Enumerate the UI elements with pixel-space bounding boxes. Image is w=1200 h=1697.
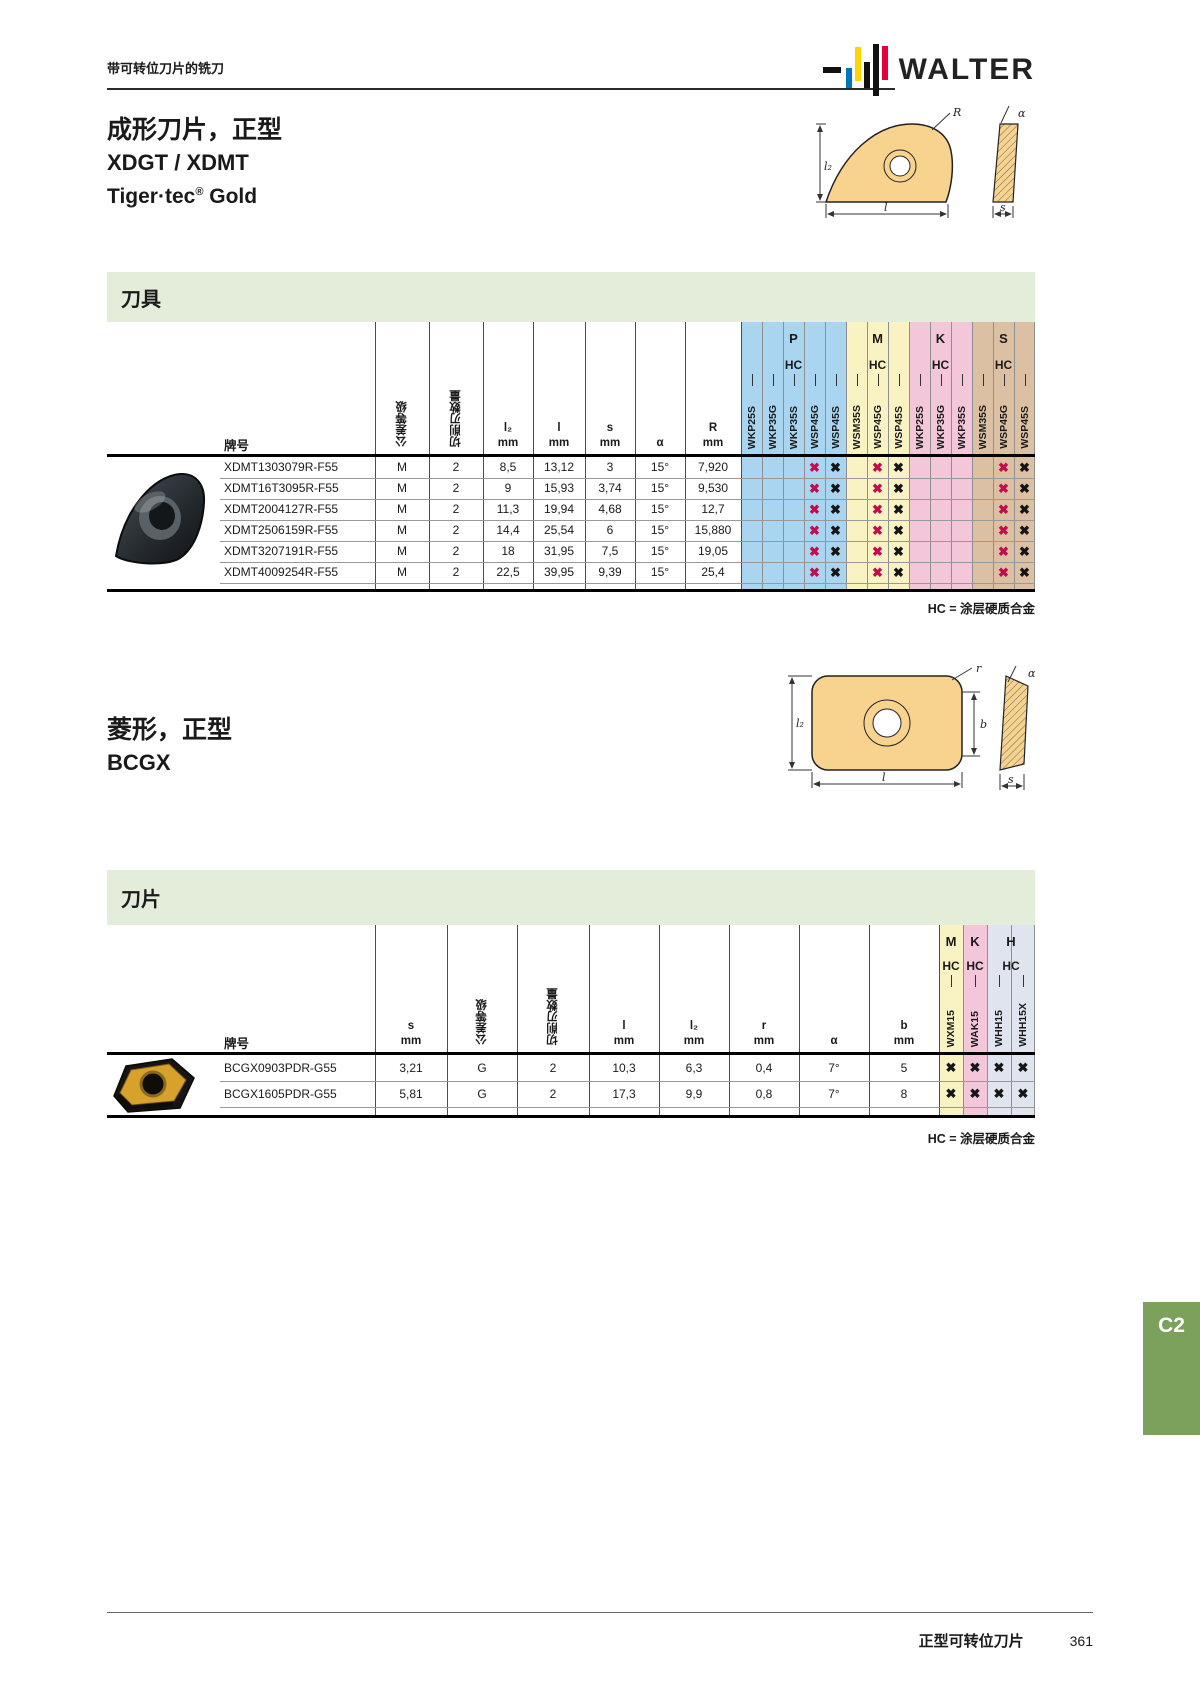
section2-title: 菱形，正型 (107, 710, 232, 746)
dim-l-label: l (884, 201, 888, 214)
section1-subtitle: XDGT / XDMT (107, 150, 249, 176)
rotated-header-label: 切削刃数量 (545, 988, 561, 1046)
tools-table: PHCWKP25SWKP35GWKP35SWSP45GWSP45SMHCWSM3… (107, 322, 1035, 592)
row-cell: 39,95 (533, 562, 585, 583)
grade-mark: ✖ (1014, 562, 1035, 583)
row-cell: 7,920 (685, 457, 741, 478)
dim-l-label: l (882, 771, 886, 784)
row-cell: 3,74 (585, 478, 635, 499)
grade-name: WKP35S (783, 384, 804, 449)
inserts-table: MHCWXM15KHCWAK15HHCWHH15WHH15Xsmm公差等级切削刃… (107, 925, 1035, 1118)
row-cell: 2 (429, 562, 483, 583)
dim-header: rmm (729, 1015, 799, 1049)
xdmt-insert-photo (110, 458, 208, 578)
row-cell: 6 (585, 520, 635, 541)
grade-name-label: WSP45G (872, 405, 884, 449)
grade-mark: ✖ (825, 478, 846, 499)
row-cell: 2 (517, 1081, 589, 1107)
row-cell: 25,4 (685, 562, 741, 583)
rotated-header: 公差等级 (375, 348, 429, 447)
grade-mark: ✖ (888, 499, 909, 520)
footer: 正型可转位刀片 361 (107, 1630, 1093, 1651)
row-designation: XDMT4009254R-F55 (224, 562, 375, 583)
inserts-band-title: 刀片 (107, 883, 161, 912)
row-cell: G (447, 1055, 517, 1081)
row-cell: 0,4 (729, 1055, 799, 1081)
row-cell: 10,3 (589, 1055, 659, 1081)
grade-name: WSP45S (888, 384, 909, 449)
grade-name-label: WKP35G (935, 405, 947, 449)
tools-band-title: 刀具 (107, 283, 161, 312)
grade-name-label: WSP45S (830, 406, 842, 449)
dim-header: lmm (533, 417, 585, 451)
grade-group-letter: H (987, 934, 1035, 949)
grade-mark: ✖ (804, 520, 825, 541)
row-cell: 22,5 (483, 562, 533, 583)
row-cell: 9,39 (585, 562, 635, 583)
grade-name-label: WSP45S (1019, 406, 1031, 449)
row-designation: BCGX0903PDR-G55 (224, 1055, 375, 1081)
grade-name: WKP25S (909, 384, 930, 449)
grade-group-coating: HC (963, 959, 987, 973)
header-rule (107, 88, 895, 90)
row-designation: XDMT2506159R-F55 (224, 520, 375, 541)
dim-alpha-label: α (1028, 667, 1036, 680)
row-cell: 18 (483, 541, 533, 562)
grade-name-label: WSP45S (893, 406, 905, 449)
row-cell: 31,95 (533, 541, 585, 562)
hc-note-1: HC = 涂层硬质合金 (107, 598, 1035, 617)
grade-name-label: WKP35G (767, 405, 779, 449)
grade-name: WKP35G (762, 384, 783, 449)
inserts-band: 刀片 (107, 870, 1035, 925)
xdmt-insert-diagram: l₂ R l α s (812, 104, 1042, 224)
grade-mark: ✖ (825, 562, 846, 583)
bcgx-insert-photo (106, 1054, 200, 1116)
grade-group-coating: HC (846, 358, 909, 372)
row-cell: 2 (429, 541, 483, 562)
row-cell: 13,12 (533, 457, 585, 478)
logo-bar-black-tall-icon (873, 44, 879, 96)
row-cell: 7,5 (585, 541, 635, 562)
grade-mark: ✖ (888, 520, 909, 541)
grade-mark: ✖ (939, 1055, 963, 1081)
grade-group-coating: HC (939, 959, 963, 973)
row-designation: BCGX1605PDR-G55 (224, 1081, 375, 1107)
grade-name-label: WHH15 (993, 1010, 1005, 1047)
grade-mark: ✖ (867, 478, 888, 499)
grade-mark: ✖ (993, 499, 1014, 520)
bottom-rule (107, 1115, 1035, 1118)
dim-l2-label: l₂ (824, 160, 832, 173)
row-designation: XDMT1303079R-F55 (224, 457, 375, 478)
footer-label: 正型可转位刀片 (919, 1630, 1024, 1651)
row-cell: 2 (429, 457, 483, 478)
row-cell: 3,21 (375, 1055, 447, 1081)
grade-name-label: WHH15X (1017, 1003, 1029, 1047)
row-line (220, 583, 1035, 584)
row-cell: 17,3 (589, 1081, 659, 1107)
row-cell: 12,7 (685, 499, 741, 520)
dim-header: l₂mm (659, 1015, 729, 1049)
grade-mark: ✖ (1014, 541, 1035, 562)
row-cell: M (375, 478, 429, 499)
grade-name: WSM35S (972, 384, 993, 449)
grade-mark: ✖ (804, 541, 825, 562)
grade-mark: ✖ (888, 541, 909, 562)
row-cell: 4,68 (585, 499, 635, 520)
row-cell: M (375, 541, 429, 562)
row-cell: G (447, 1081, 517, 1107)
grade-mark: ✖ (1011, 1081, 1035, 1107)
row-cell: 9,530 (685, 478, 741, 499)
grade-name-label: WAK15 (969, 1011, 981, 1047)
section1-title: 成形刀片，正型 (107, 110, 282, 146)
grade-name-label: WSM35S (851, 405, 863, 449)
row-cell: 8 (869, 1081, 939, 1107)
grade-mark: ✖ (993, 562, 1014, 583)
grade-mark: ✖ (867, 520, 888, 541)
grade-group-coating: HC (741, 358, 846, 372)
grade-name-label: WSP45G (809, 405, 821, 449)
grade-name-label: WKP25S (746, 406, 758, 449)
bottom-rule (107, 589, 1035, 592)
grade-name: WXM15 (939, 985, 963, 1047)
row-cell: 15° (635, 541, 685, 562)
grade-mark: ✖ (963, 1055, 987, 1081)
grade-mark: ✖ (939, 1081, 963, 1107)
grade-mark: ✖ (987, 1081, 1011, 1107)
grade-mark: ✖ (867, 499, 888, 520)
grade-group-letter: S (972, 331, 1035, 346)
row-cell: 7° (799, 1081, 869, 1107)
grade-name: WSP45S (1014, 384, 1035, 449)
grade-mark: ✖ (993, 478, 1014, 499)
grade-name: WHH15 (987, 985, 1011, 1047)
tools-band: 刀具 (107, 272, 1035, 322)
row-cell: 2 (429, 520, 483, 541)
logo-wordmark: WALTER (899, 53, 1035, 87)
row-cell: 15,93 (533, 478, 585, 499)
row-cell: 15° (635, 499, 685, 520)
grade-group-letter: M (939, 934, 963, 949)
row-cell: 19,94 (533, 499, 585, 520)
dim-alpha-label: α (1018, 107, 1026, 120)
breadcrumb: 带可转位刀片的铣刀 (107, 58, 224, 77)
grade-mark: ✖ (825, 541, 846, 562)
grade-mark: ✖ (804, 562, 825, 583)
row-cell: 5 (869, 1055, 939, 1081)
row-cell: 2 (517, 1055, 589, 1081)
dim-header: α (799, 1015, 869, 1049)
bcgx-insert-diagram: l₂ r b l α s (782, 664, 1040, 798)
grade-mark: ✖ (1014, 478, 1035, 499)
grade-mark: ✖ (963, 1081, 987, 1107)
dim-r-label: R (952, 106, 961, 119)
row-cell: 9 (483, 478, 533, 499)
grade-mark: ✖ (825, 499, 846, 520)
row-cell: 0,8 (729, 1081, 799, 1107)
logo-bar-red-icon (882, 46, 888, 80)
grade-mark: ✖ (993, 541, 1014, 562)
grade-group-coating: HC (972, 358, 1035, 372)
dim-header: α (635, 417, 685, 451)
catalog-page: 带可转位刀片的铣刀 WALTER 成形刀片，正型 XDGT / XDMT Tig… (0, 0, 1200, 1697)
grade-name: WAK15 (963, 985, 987, 1047)
dim-header: bmm (869, 1015, 939, 1049)
dim-header: smm (375, 1015, 447, 1049)
row-cell: 3 (585, 457, 635, 478)
walter-logo: WALTER (823, 38, 1035, 102)
row-cell: M (375, 457, 429, 478)
rotated-header-label: 切削刃数量 (448, 390, 464, 448)
grade-mark: ✖ (1014, 457, 1035, 478)
grade-mark: ✖ (987, 1055, 1011, 1081)
grade-mark: ✖ (993, 520, 1014, 541)
grade-mark: ✖ (804, 478, 825, 499)
grade-name-label: WKP35S (788, 406, 800, 449)
row-cell: 25,54 (533, 520, 585, 541)
row-cell: M (375, 562, 429, 583)
grade-mark: ✖ (1011, 1055, 1035, 1081)
dim-l2-label: l₂ (796, 717, 804, 730)
grade-mark: ✖ (804, 499, 825, 520)
grade-name: WKP25S (741, 384, 762, 449)
logo-bar-yellow-icon (855, 47, 861, 81)
dim-b-label: b (980, 718, 987, 731)
hc-note-2: HC = 涂层硬质合金 (107, 1128, 1035, 1147)
row-designation: XDMT2004127R-F55 (224, 499, 375, 520)
dim-header: l₂mm (483, 417, 533, 451)
grade-mark: ✖ (867, 457, 888, 478)
grade-name-label: WSM35S (977, 405, 989, 449)
logo-bar-blue-icon (846, 68, 852, 88)
row-cell: 2 (429, 499, 483, 520)
row-cell: 15° (635, 562, 685, 583)
row-cell: 15° (635, 457, 685, 478)
dim-header: smm (585, 417, 635, 451)
grade-group-coating: HC (909, 358, 972, 372)
row-designation: XDMT16T3095R-F55 (224, 478, 375, 499)
row-cell: 6,3 (659, 1055, 729, 1081)
grade-mark: ✖ (888, 478, 909, 499)
row-cell: 15,880 (685, 520, 741, 541)
grade-group-letter: K (963, 934, 987, 949)
section1-grade-line: Tiger·tec® Gold (107, 185, 257, 209)
grade-name-label: WKP25S (914, 406, 926, 449)
row-cell: 9,9 (659, 1081, 729, 1107)
grade-mark: ✖ (825, 457, 846, 478)
row-cell: 8,5 (483, 457, 533, 478)
row-cell: 19,05 (685, 541, 741, 562)
grade-mark: ✖ (867, 562, 888, 583)
grade-name: WSP45G (804, 384, 825, 449)
designation-header: 牌号 (224, 1033, 249, 1052)
rotated-header: 切削刃数量 (429, 348, 483, 447)
grade-mark: ✖ (825, 520, 846, 541)
grade-mark: ✖ (1014, 499, 1035, 520)
row-cell: 15° (635, 478, 685, 499)
row-cell: 15° (635, 520, 685, 541)
grade-group-letter: P (741, 331, 846, 346)
row-cell: 2 (429, 478, 483, 499)
footer-rule (107, 1612, 1093, 1613)
chapter-tab: C2 (1143, 1302, 1200, 1435)
grade-name: WSM35S (846, 384, 867, 449)
grade-mark: ✖ (867, 541, 888, 562)
grade-name: WHH15X (1011, 985, 1035, 1047)
grade-mark: ✖ (1014, 520, 1035, 541)
gold-text: Gold (203, 185, 257, 208)
grade-name-label: WSP45G (998, 405, 1010, 449)
logo-dash-icon (823, 67, 841, 73)
tigertec-text: Tiger·tec (107, 185, 195, 208)
grade-name: WSP45S (825, 384, 846, 449)
rotated-header: 切削刃数量 (517, 951, 589, 1045)
section2-subtitle: BCGX (107, 750, 171, 776)
grade-group-letter: M (846, 331, 909, 346)
rotated-header-label: 公差等级 (474, 999, 490, 1045)
row-cell: 14,4 (483, 520, 533, 541)
rotated-header-label: 公差等级 (394, 401, 410, 447)
row-cell: 11,3 (483, 499, 533, 520)
row-cell: 5,81 (375, 1081, 447, 1107)
grade-mark: ✖ (888, 562, 909, 583)
grade-group-coating: HC (987, 959, 1035, 973)
page-number: 361 (1070, 1633, 1093, 1649)
grade-name: WKP35G (930, 384, 951, 449)
grade-group-letter: K (909, 331, 972, 346)
designation-header: 牌号 (224, 435, 249, 454)
dim-header: Rmm (685, 417, 741, 451)
row-cell: M (375, 499, 429, 520)
dim-s-label: s (1000, 201, 1006, 214)
grade-name: WSP45G (993, 384, 1014, 449)
row-cell: 7° (799, 1055, 869, 1081)
grade-name-label: WKP35S (956, 406, 968, 449)
grade-mark: ✖ (888, 457, 909, 478)
logo-bar-black-icon (864, 62, 870, 88)
dim-r-label: r (976, 664, 982, 675)
rotated-header: 公差等级 (447, 951, 517, 1045)
grade-mark: ✖ (993, 457, 1014, 478)
row-line (220, 1107, 1035, 1108)
dim-s-label: s (1008, 773, 1014, 786)
grade-name: WKP35S (951, 384, 972, 449)
row-cell: M (375, 520, 429, 541)
row-designation: XDMT3207191R-F55 (224, 541, 375, 562)
grade-mark: ✖ (804, 457, 825, 478)
dim-header: lmm (589, 1015, 659, 1049)
grade-name-label: WXM15 (945, 1010, 957, 1047)
grade-name: WSP45G (867, 384, 888, 449)
